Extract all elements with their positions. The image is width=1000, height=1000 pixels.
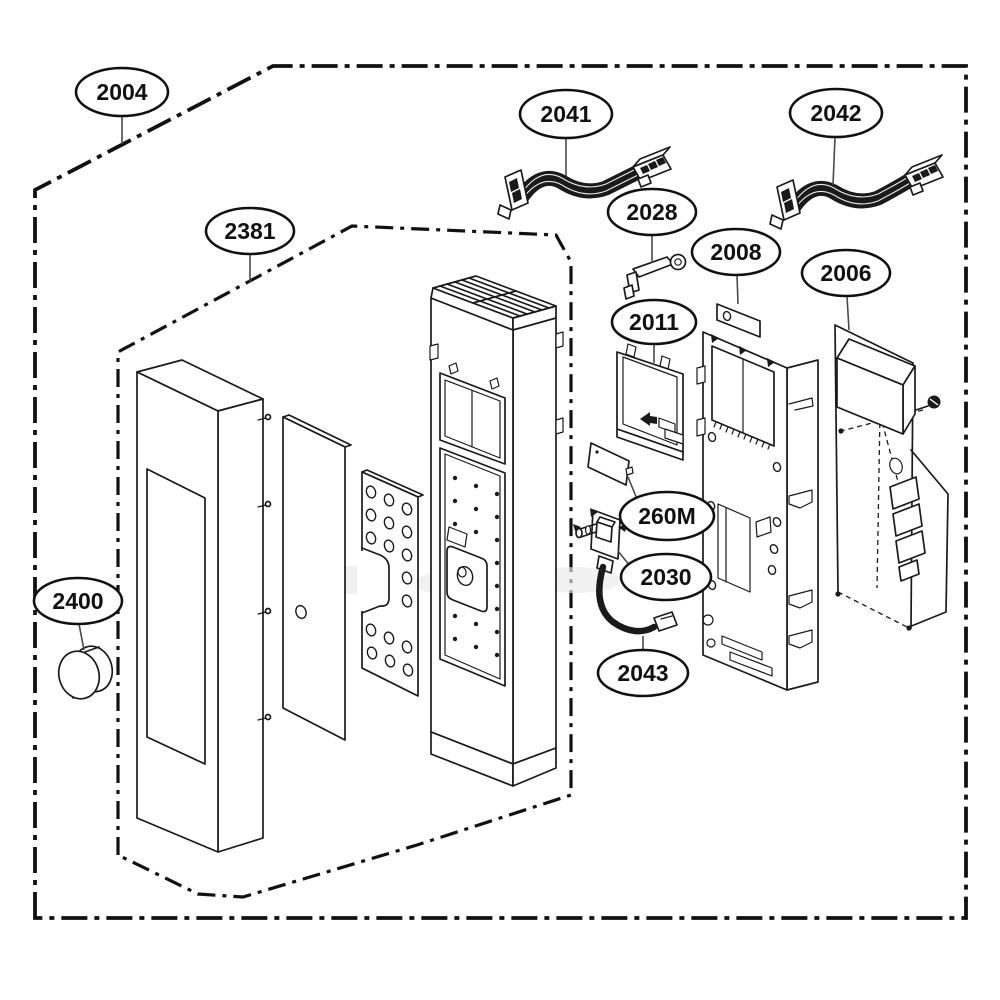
front-panel-part xyxy=(137,360,271,852)
frame-bracket-part-2008 xyxy=(697,304,818,690)
callout-2006-label: 2006 xyxy=(820,260,871,286)
callout-2028-label: 2028 xyxy=(626,199,677,225)
bracket-part-2028 xyxy=(624,255,686,300)
callout-260m-label: 260M xyxy=(638,503,696,529)
callout-2042: 2042 xyxy=(790,89,882,185)
exploded-parts-diagram: 2004 2381 2041 2042 2028 2008 xyxy=(0,0,1000,1000)
callout-2041: 2041 xyxy=(520,90,612,176)
callout-2381: 2381 xyxy=(206,208,294,283)
callout-2381-label: 2381 xyxy=(224,218,275,244)
display-frame-part-2011 xyxy=(617,344,683,460)
callout-2043: 2043 xyxy=(598,636,688,696)
membrane-keypad-part xyxy=(357,470,423,696)
callout-2400-label: 2400 xyxy=(52,588,103,614)
callout-2030-label: 2030 xyxy=(640,564,691,590)
callout-260m: 260M xyxy=(620,477,714,540)
callout-2042-label: 2042 xyxy=(810,100,861,126)
callout-2041-label: 2041 xyxy=(540,101,591,127)
callout-2028: 2028 xyxy=(608,189,696,263)
callout-2004-label: 2004 xyxy=(96,79,147,105)
callout-2400: 2400 xyxy=(34,578,122,650)
callout-2011-label: 2011 xyxy=(629,309,679,335)
callout-2043-label: 2043 xyxy=(617,660,668,686)
card-part-260m xyxy=(588,443,633,485)
diagram-canvas: 2004 2381 2041 2042 2028 2008 xyxy=(0,0,1000,1000)
callout-2008-label: 2008 xyxy=(710,239,761,265)
overlay-sheet-part xyxy=(283,415,351,740)
callout-2006: 2006 xyxy=(802,250,890,330)
callout-2004: 2004 xyxy=(76,68,168,144)
control-housing-part xyxy=(430,276,563,786)
callout-2008: 2008 xyxy=(692,229,780,304)
knob-part xyxy=(53,642,117,703)
ribbon-cable-2042 xyxy=(770,155,943,229)
screw xyxy=(916,396,941,411)
callout-2011: 2011 xyxy=(612,300,696,363)
callout-2030: 2030 xyxy=(618,551,711,600)
pcb-part-2006 xyxy=(835,325,948,631)
